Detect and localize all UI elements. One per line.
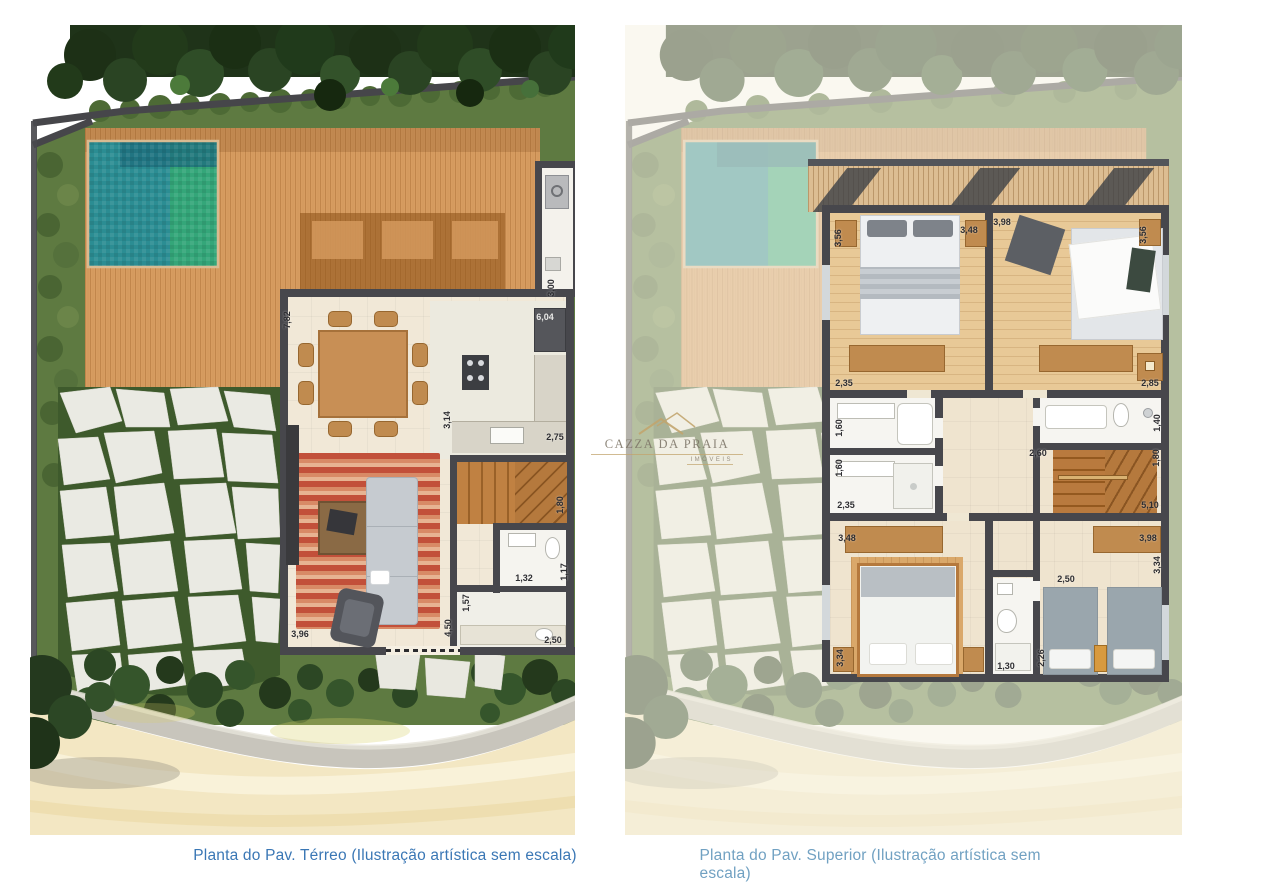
window — [822, 585, 830, 640]
dim-label: 1,80 — [1151, 449, 1161, 467]
wall — [985, 520, 993, 682]
wall — [822, 205, 1169, 213]
wall — [450, 585, 500, 592]
dim-label: 1,80 — [555, 496, 565, 514]
ground-floor-house — [30, 25, 575, 835]
pillow — [1113, 649, 1155, 669]
bathtub — [1045, 405, 1107, 429]
wall — [573, 165, 575, 293]
nightstand — [963, 647, 984, 672]
dim-label: 2,35 — [837, 500, 855, 510]
roof-beam — [808, 159, 1169, 166]
sliding-door-dashes — [386, 649, 460, 652]
wall — [535, 165, 542, 293]
blanket — [861, 567, 955, 597]
dim-label: 2,85 — [1141, 378, 1159, 388]
washer-door-icon — [551, 185, 563, 197]
pillow — [869, 643, 907, 665]
kitchen-sink — [490, 427, 524, 444]
dim-label: 3,34 — [835, 649, 845, 667]
dim-label: 2,60 — [1029, 448, 1047, 458]
wall — [822, 513, 1169, 521]
door-gap — [1033, 408, 1040, 426]
roof-logo-icon — [636, 410, 698, 436]
dining-chair — [298, 381, 314, 405]
window — [1161, 605, 1169, 660]
dim-label: 2,26 — [1036, 649, 1046, 667]
dining-chair — [374, 421, 398, 437]
caption-terreo: Planta do Pav. Térreo (Ilustração artíst… — [193, 847, 576, 865]
bath-counter — [837, 403, 895, 419]
dim-label: 3,34 — [1152, 556, 1162, 574]
shower-drain-icon — [910, 483, 917, 490]
dim-label: 2,50 — [1057, 574, 1075, 584]
bathroom-sink — [997, 583, 1013, 595]
floor-plan-ground-panel: 7,82 3,00 6,04 3,14 2,75 1,80 1,32 1,17 … — [30, 25, 575, 835]
wall — [822, 390, 1169, 398]
dining-chair — [412, 343, 428, 367]
dim-label: 3,48 — [960, 225, 978, 235]
pillow — [915, 643, 953, 665]
dining-chair — [328, 311, 352, 327]
wall — [493, 523, 500, 593]
dim-label: 3,00 — [546, 279, 556, 297]
wall — [566, 289, 574, 655]
toilet — [1113, 403, 1129, 427]
dim-label: 5,10 — [1141, 500, 1159, 510]
watermark: CAZZA DA PRAIA IMÓVEIS — [591, 410, 743, 465]
dining-chair — [298, 343, 314, 367]
dim-label: 1,32 — [515, 573, 533, 583]
stove-burner — [467, 360, 473, 366]
bathtub — [897, 403, 933, 445]
wall — [457, 455, 574, 462]
stove-burner — [478, 375, 484, 381]
tray — [326, 509, 357, 536]
dim-label: 3,96 — [291, 629, 309, 639]
wall — [493, 586, 574, 592]
pillow — [913, 220, 953, 237]
dim-label: 3,48 — [838, 533, 856, 543]
dim-label: 1,40 — [1152, 414, 1162, 432]
dining-table — [318, 330, 408, 418]
dresser — [849, 345, 945, 372]
dim-label: 3,56 — [833, 229, 843, 247]
watermark-divider-small — [687, 464, 733, 465]
door-gap — [1023, 390, 1047, 398]
wall — [1040, 443, 1169, 450]
wall — [822, 448, 935, 455]
stove-burner — [478, 360, 484, 366]
dining-chair — [328, 421, 352, 437]
stove — [462, 355, 489, 390]
wall — [450, 455, 457, 533]
laundry-sink — [545, 257, 561, 271]
tv-panel — [286, 425, 299, 565]
dresser — [1039, 345, 1133, 372]
dim-label: 1,60 — [834, 419, 844, 437]
dim-label: 6,04 — [536, 312, 554, 322]
floor-plans-image: 7,82 3,00 6,04 3,14 2,75 1,80 1,32 1,17 … — [0, 0, 1280, 890]
toilet — [545, 537, 560, 559]
wall — [280, 289, 575, 297]
watermark-divider — [591, 454, 743, 455]
dim-label: 1,57 — [461, 594, 471, 612]
dim-label: 4,50 — [443, 619, 453, 637]
dim-label: 1,60 — [834, 459, 844, 477]
door-gap — [1033, 581, 1040, 601]
dim-label: 3,14 — [442, 411, 452, 429]
door-gap — [907, 390, 931, 398]
side-table-icon — [1145, 361, 1155, 371]
dining-chair — [374, 311, 398, 327]
bathroom-sink — [508, 533, 536, 547]
stairs-winder — [515, 462, 567, 524]
watermark-brand: CAZZA DA PRAIA — [591, 437, 743, 452]
dim-label: 3,56 — [1138, 226, 1148, 244]
dim-label: 3,98 — [993, 217, 1011, 227]
stove-burner — [467, 375, 473, 381]
dim-label: 2,50 — [544, 635, 562, 645]
dim-label: 1,30 — [997, 661, 1015, 671]
toilet — [997, 609, 1017, 633]
dim-label: 3,98 — [1139, 533, 1157, 543]
pillow — [867, 220, 907, 237]
caption-superior: Planta do Pav. Superior (Ilustração artí… — [700, 847, 1087, 883]
sofa-pillow — [370, 570, 390, 585]
pillow — [1049, 649, 1091, 669]
wall — [935, 398, 943, 521]
dim-label: 1,17 — [559, 563, 569, 581]
door-gap — [947, 513, 969, 521]
dim-label: 7,82 — [282, 311, 292, 329]
wall — [985, 570, 1040, 577]
stairs-handrail — [1058, 475, 1128, 480]
door-gap — [935, 418, 943, 438]
dim-label: 2,35 — [835, 378, 853, 388]
dim-label: 2,75 — [546, 432, 564, 442]
watermark-subtitle: IMÓVEIS — [591, 457, 743, 463]
window — [822, 265, 830, 320]
bath-counter — [837, 461, 895, 477]
blanket — [860, 267, 960, 299]
door-gap — [935, 466, 943, 486]
dining-chair — [412, 381, 428, 405]
nightstand — [1094, 645, 1107, 672]
dresser — [845, 526, 943, 553]
wall — [493, 523, 574, 530]
